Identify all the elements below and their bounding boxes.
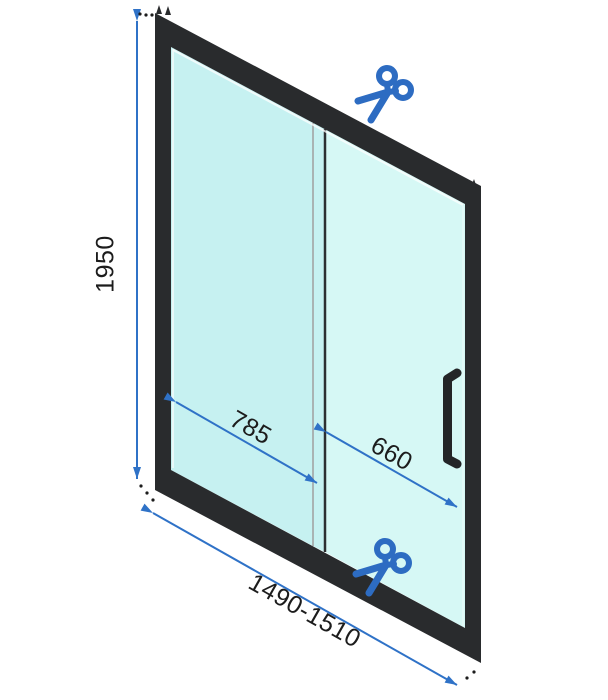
glass-panel-sliding [171,47,313,546]
frame-profile-spike [165,6,171,15]
dimension-height-label: 1950 [92,235,120,293]
frame-profile-spike [156,5,162,14]
diagram-canvas: 1950 785 660 1490-1510 [0,0,608,700]
scissors-icon-top [358,68,411,120]
shower-door-diagram: 1950 785 660 1490-1510 [0,0,608,700]
glass-panel-overlap [313,123,325,552]
